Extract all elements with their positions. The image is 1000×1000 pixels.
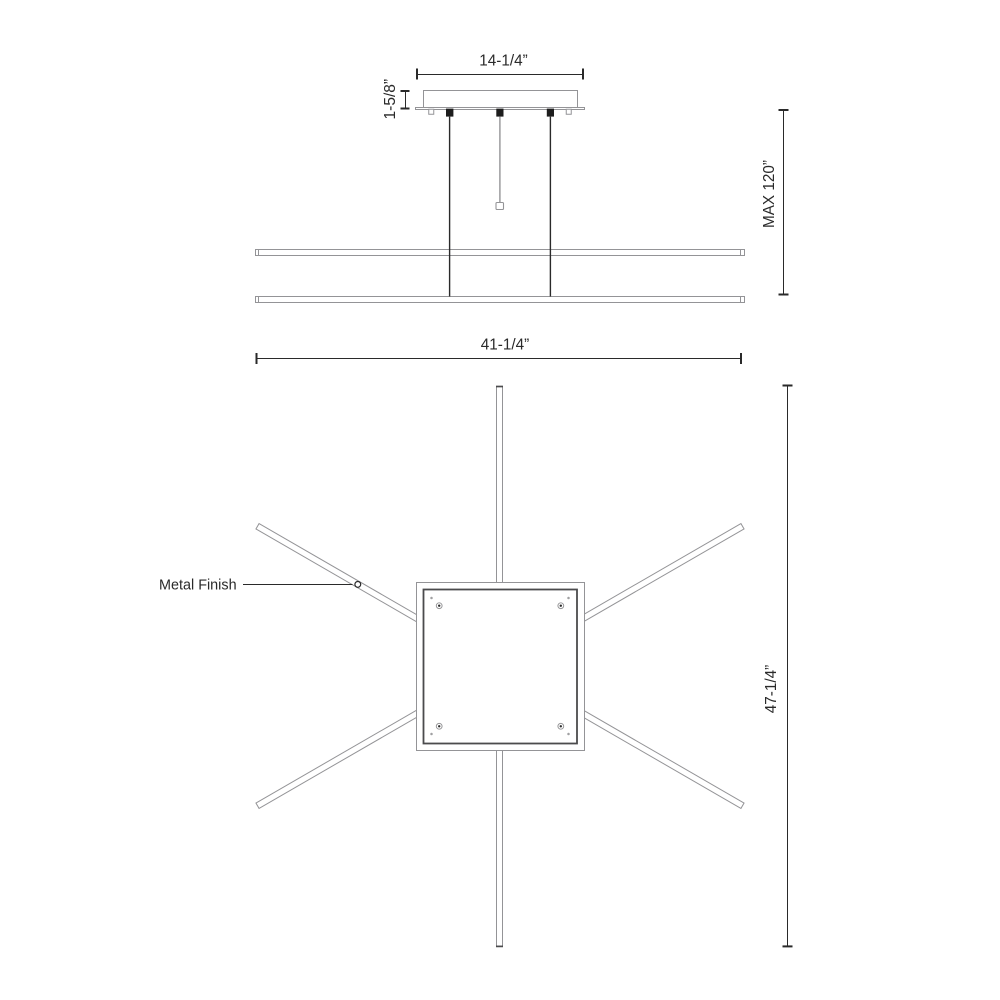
svg-text:Metal Finish: Metal Finish	[159, 578, 237, 594]
svg-text:47-1/4”: 47-1/4”	[763, 665, 780, 713]
svg-text:41-1/4”: 41-1/4”	[481, 337, 529, 354]
svg-text:1-5/8”: 1-5/8”	[382, 79, 399, 120]
svg-text:MAX 120”: MAX 120”	[761, 160, 778, 228]
svg-text:14-1/4”: 14-1/4”	[479, 53, 527, 70]
